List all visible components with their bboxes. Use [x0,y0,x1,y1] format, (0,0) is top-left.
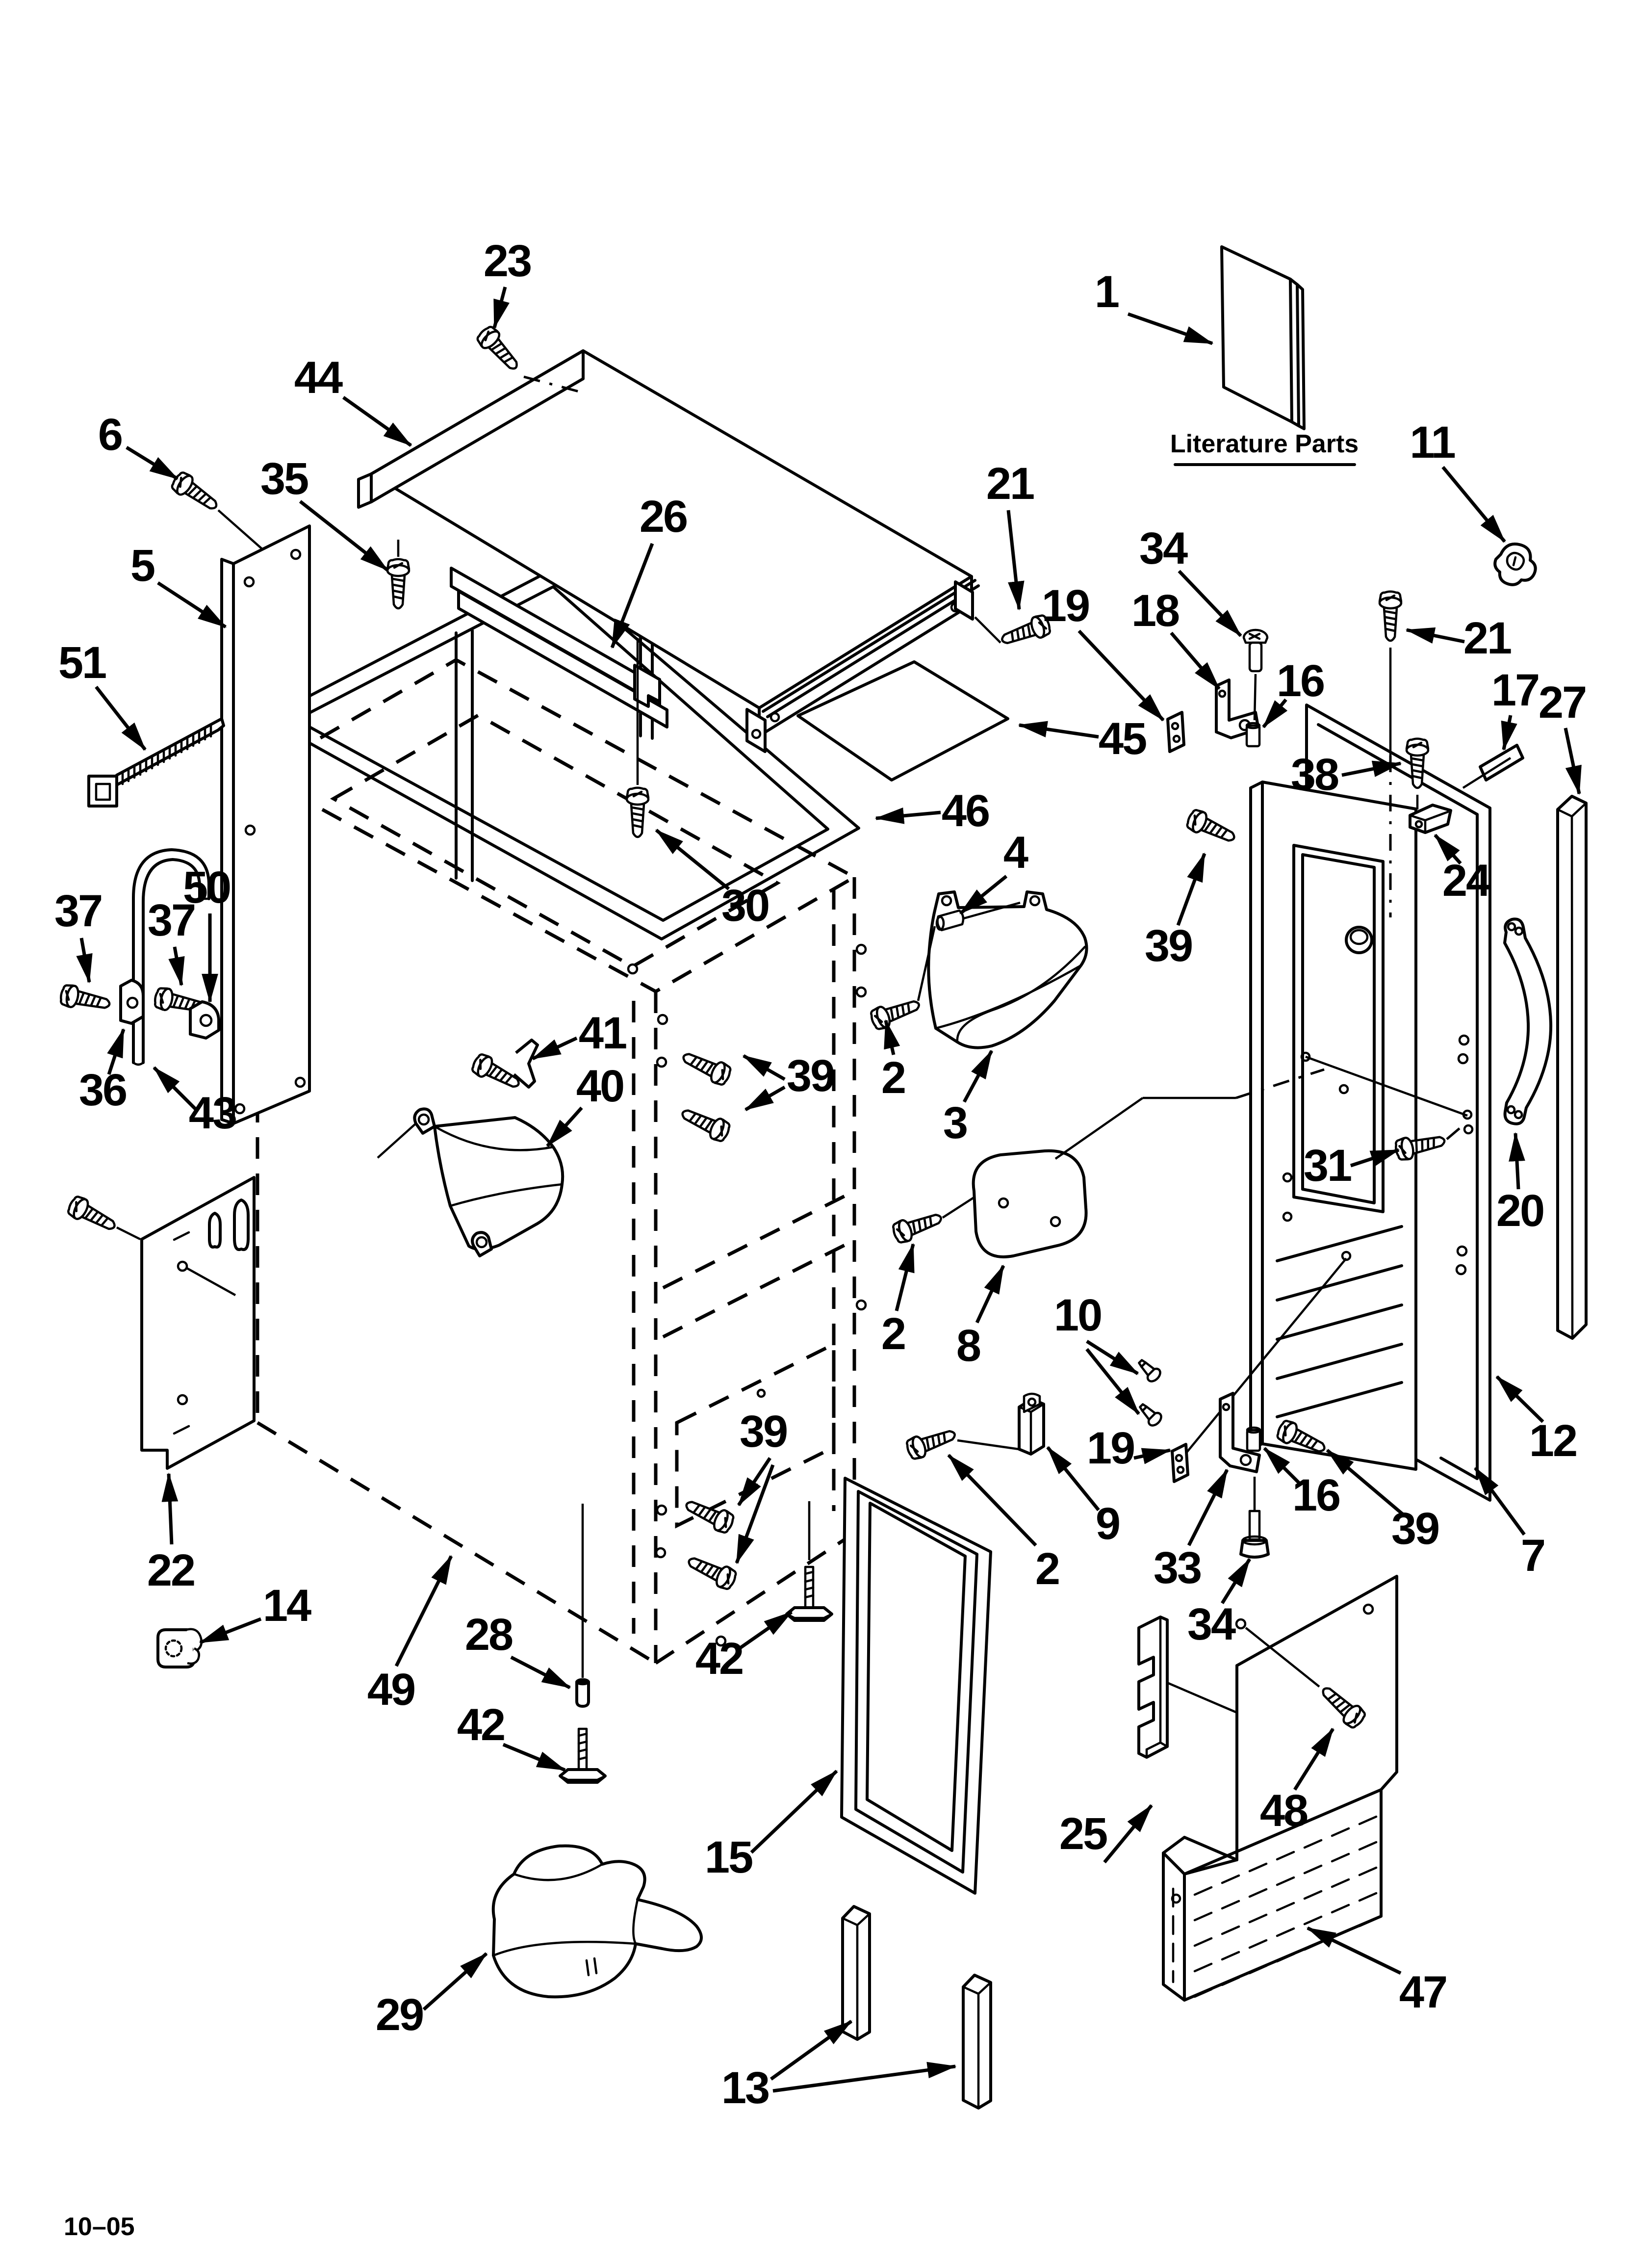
svg-text:18: 18 [1131,586,1179,636]
svg-text:43: 43 [189,1088,236,1138]
svg-text:7: 7 [1521,1531,1544,1581]
svg-text:26: 26 [640,492,687,542]
svg-text:Literature Parts: Literature Parts [1170,430,1359,458]
svg-text:40: 40 [576,1061,623,1111]
svg-text:21: 21 [1463,613,1511,663]
svg-text:29: 29 [376,1990,423,2040]
svg-text:38: 38 [1291,750,1338,800]
svg-text:51: 51 [58,638,106,688]
svg-text:49: 49 [367,1665,414,1715]
svg-text:4: 4 [1003,828,1028,878]
svg-text:47: 47 [1399,1967,1446,2017]
svg-text:28: 28 [465,1610,513,1660]
svg-text:44: 44 [294,353,343,403]
svg-text:41: 41 [579,1008,626,1058]
svg-text:33: 33 [1154,1543,1201,1593]
svg-text:25: 25 [1059,1809,1107,1859]
svg-text:12: 12 [1529,1416,1576,1466]
svg-text:37: 37 [54,886,102,936]
svg-text:2: 2 [881,1053,905,1103]
svg-text:16: 16 [1277,656,1324,706]
svg-text:34: 34 [1187,1599,1236,1649]
svg-text:34: 34 [1139,523,1188,574]
svg-text:42: 42 [457,1700,504,1750]
svg-text:22: 22 [147,1545,194,1595]
svg-text:8: 8 [956,1321,980,1371]
svg-text:2: 2 [1035,1544,1059,1594]
svg-text:19: 19 [1042,581,1089,631]
svg-text:42: 42 [695,1634,743,1684]
svg-text:39: 39 [787,1051,834,1101]
svg-text:19: 19 [1087,1423,1134,1473]
svg-text:3: 3 [943,1098,967,1148]
svg-text:27: 27 [1539,678,1586,728]
svg-text:35: 35 [260,454,308,504]
svg-text:48: 48 [1260,1786,1308,1836]
svg-text:5: 5 [130,541,154,591]
svg-text:20: 20 [1496,1186,1543,1236]
svg-text:10–05: 10–05 [64,2213,135,2241]
svg-text:21: 21 [986,459,1034,509]
svg-text:45: 45 [1099,714,1146,764]
svg-text:24: 24 [1442,856,1491,906]
svg-text:23: 23 [484,236,531,286]
svg-text:9: 9 [1096,1499,1119,1549]
svg-text:39: 39 [740,1407,787,1457]
svg-text:17: 17 [1491,665,1539,715]
svg-text:50: 50 [183,862,230,912]
svg-text:39: 39 [1145,921,1192,971]
svg-text:15: 15 [705,1832,752,1882]
svg-text:11: 11 [1410,417,1455,468]
svg-text:10: 10 [1054,1290,1101,1340]
svg-text:1: 1 [1095,267,1119,317]
svg-text:14: 14 [263,1581,311,1631]
svg-text:2: 2 [881,1309,905,1359]
svg-text:13: 13 [721,2063,769,2113]
svg-text:36: 36 [79,1065,126,1115]
svg-text:6: 6 [98,410,122,460]
svg-text:46: 46 [942,786,989,836]
svg-text:31: 31 [1304,1141,1351,1191]
svg-text:16: 16 [1292,1470,1339,1520]
